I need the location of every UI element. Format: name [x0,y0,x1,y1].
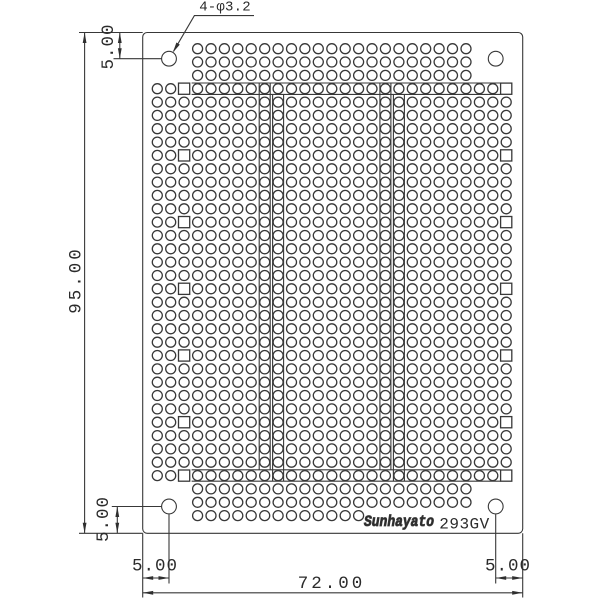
svg-text:Sunhayato: Sunhayato [364,513,434,531]
svg-text:5.00: 5.00 [132,557,178,577]
svg-text:72.00: 72.00 [298,574,366,594]
svg-text:5.00: 5.00 [485,557,531,577]
svg-text:293GV: 293GV [439,516,490,534]
svg-text:4-φ3.2: 4-φ3.2 [199,0,251,16]
svg-text:95.00: 95.00 [67,246,87,314]
svg-text:5.00: 5.00 [99,23,119,69]
svg-text:5.00: 5.00 [94,496,114,542]
